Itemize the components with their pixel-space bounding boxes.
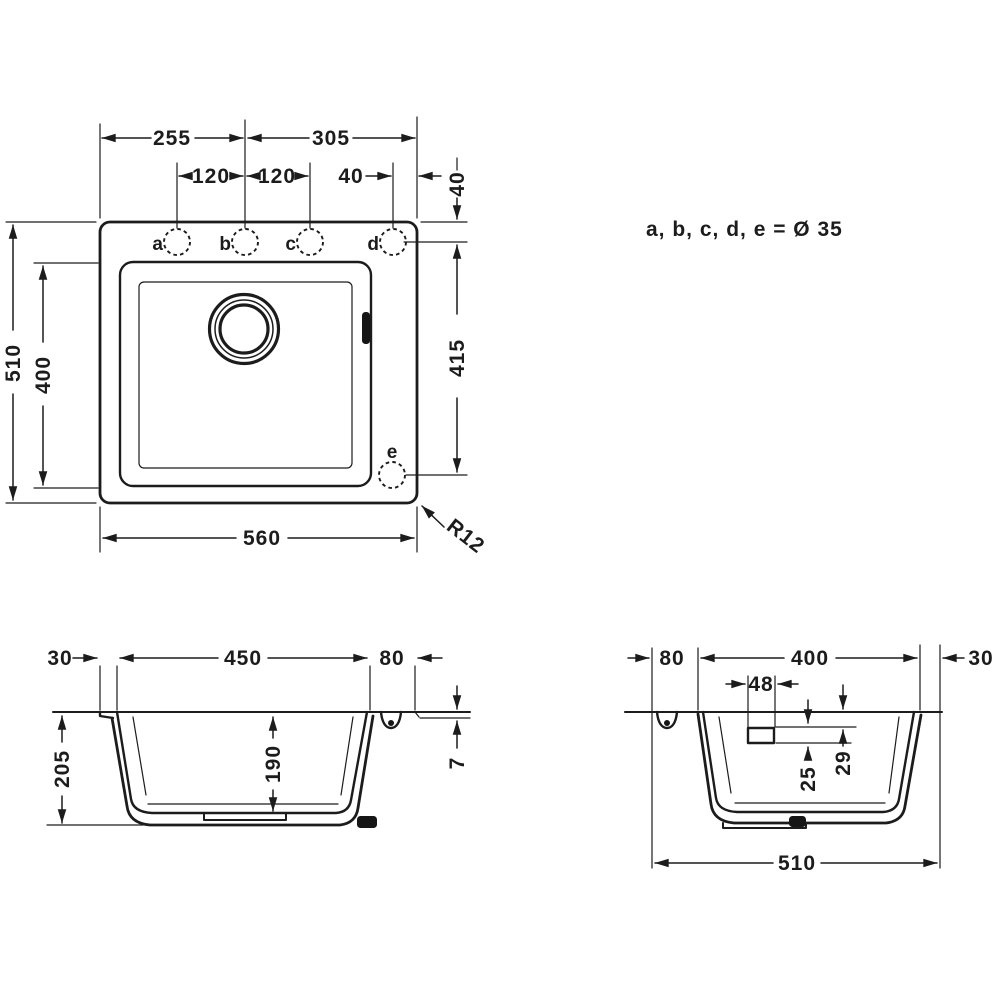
dim-label-30-side: 30: [968, 647, 993, 670]
hole-diameter-note: a, b, c, d, e = Ø 35: [646, 218, 843, 241]
drain-outline: [210, 295, 279, 364]
dim-label-29: 29: [832, 750, 855, 775]
hole-a: [164, 229, 190, 255]
top-view-dimension-lines: [13, 138, 457, 538]
front-drain-fitting: [357, 816, 377, 828]
hole-d: [380, 229, 406, 255]
side-section-view: 80 400 30 48 25 29 510: [625, 645, 994, 875]
hole-label-c: c: [285, 234, 296, 255]
dim-label-205: 205: [51, 750, 74, 788]
dim-label-80-side: 80: [659, 647, 684, 670]
dim-label-560: 560: [243, 527, 281, 550]
dim-label-40-d: 40: [338, 165, 363, 188]
dim-label-120-ab: 120: [192, 165, 230, 188]
sink-dimension-drawing: 255 305 120 120 40 40 415 510 400 560 R1…: [0, 0, 1000, 1000]
hole-label-e: e: [387, 442, 398, 463]
top-view: 255 305 120 120 40 40 415 510 400 560 R1…: [2, 117, 489, 558]
hole-label-a: a: [152, 234, 163, 255]
dim-label-80-front: 80: [379, 647, 404, 670]
front-bowl-outer: [112, 716, 373, 825]
dim-label-r12: R12: [442, 515, 489, 559]
dim-label-305: 305: [312, 127, 350, 150]
side-drain-fitting: [789, 816, 806, 827]
dim-label-25: 25: [797, 766, 820, 791]
overflow-opening: [748, 728, 774, 743]
hole-label-b: b: [219, 234, 231, 255]
dim-label-450: 450: [224, 647, 262, 670]
dim-label-415: 415: [446, 339, 469, 377]
front-extension-lines: [47, 666, 470, 825]
dim-label-7: 7: [446, 757, 469, 770]
dim-label-120-bc: 120: [258, 165, 296, 188]
front-bowl-inner: [117, 712, 367, 813]
dim-label-40-top: 40: [446, 171, 469, 196]
dim-label-510-side: 510: [778, 852, 816, 875]
hole-e: [379, 462, 405, 488]
dim-label-255: 255: [153, 127, 191, 150]
hole-label-d: d: [367, 234, 379, 255]
bowl-inner-edge: [139, 282, 352, 468]
hole-b: [232, 229, 258, 255]
r12-leader: [422, 506, 444, 527]
dim-label-30-front: 30: [47, 647, 72, 670]
side-extension-lines: [652, 645, 940, 868]
dim-label-400-top: 400: [32, 356, 55, 394]
sink-outline: [100, 222, 417, 503]
technical-drawing-svg: 255 305 120 120 40 40 415 510 400 560 R1…: [0, 0, 1000, 1000]
front-section-view: 30 450 80 205 190 7: [47, 647, 470, 828]
dim-label-400-side: 400: [791, 647, 829, 670]
dim-label-48: 48: [748, 673, 773, 696]
dim-label-190: 190: [262, 745, 285, 783]
hole-c: [297, 229, 323, 255]
overflow-slot: [362, 312, 370, 344]
dim-label-510-top: 510: [2, 344, 25, 382]
